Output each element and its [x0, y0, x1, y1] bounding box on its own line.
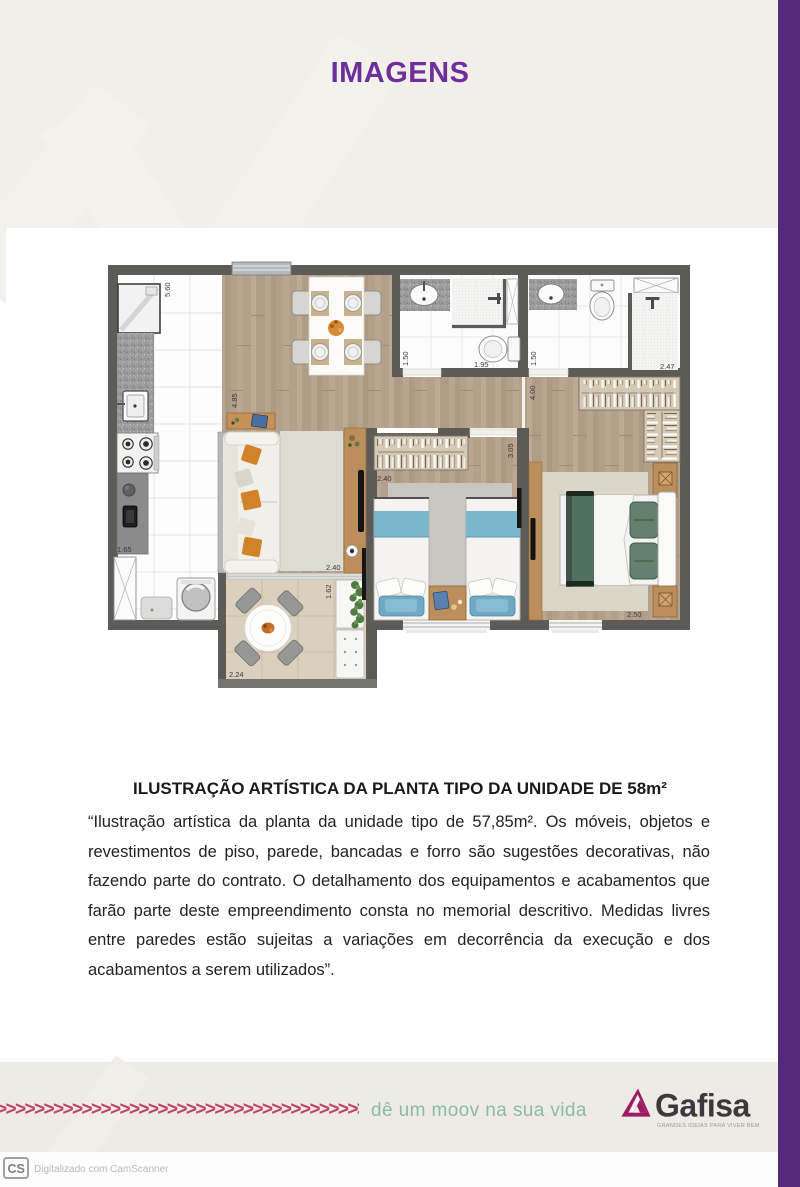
svg-text:CS: CS — [8, 1162, 25, 1176]
svg-text:1.50: 1.50 — [401, 351, 410, 366]
svg-text:Gafisa: Gafisa — [655, 1088, 751, 1124]
svg-text:2.47: 2.47 — [660, 362, 675, 371]
svg-text:4.85: 4.85 — [230, 393, 239, 408]
svg-text:1.62: 1.62 — [324, 584, 333, 599]
svg-text:2.40: 2.40 — [377, 474, 392, 483]
svg-text:1.50: 1.50 — [529, 351, 538, 366]
svg-text:4.00: 4.00 — [528, 385, 537, 400]
svg-text:1.95: 1.95 — [474, 360, 489, 369]
svg-text:GRANDES IDEIAS PARA VIVER BEM: GRANDES IDEIAS PARA VIVER BEM — [657, 1123, 760, 1129]
svg-text:2.24: 2.24 — [229, 670, 244, 679]
svg-text:2.50: 2.50 — [627, 610, 642, 619]
svg-text:5.60: 5.60 — [163, 282, 172, 297]
svg-text:Digitalizado com CamScanner: Digitalizado com CamScanner — [34, 1164, 169, 1175]
svg-text:3.05: 3.05 — [506, 443, 515, 458]
svg-text:2.40: 2.40 — [326, 563, 341, 572]
svg-text:1.65: 1.65 — [117, 545, 132, 554]
